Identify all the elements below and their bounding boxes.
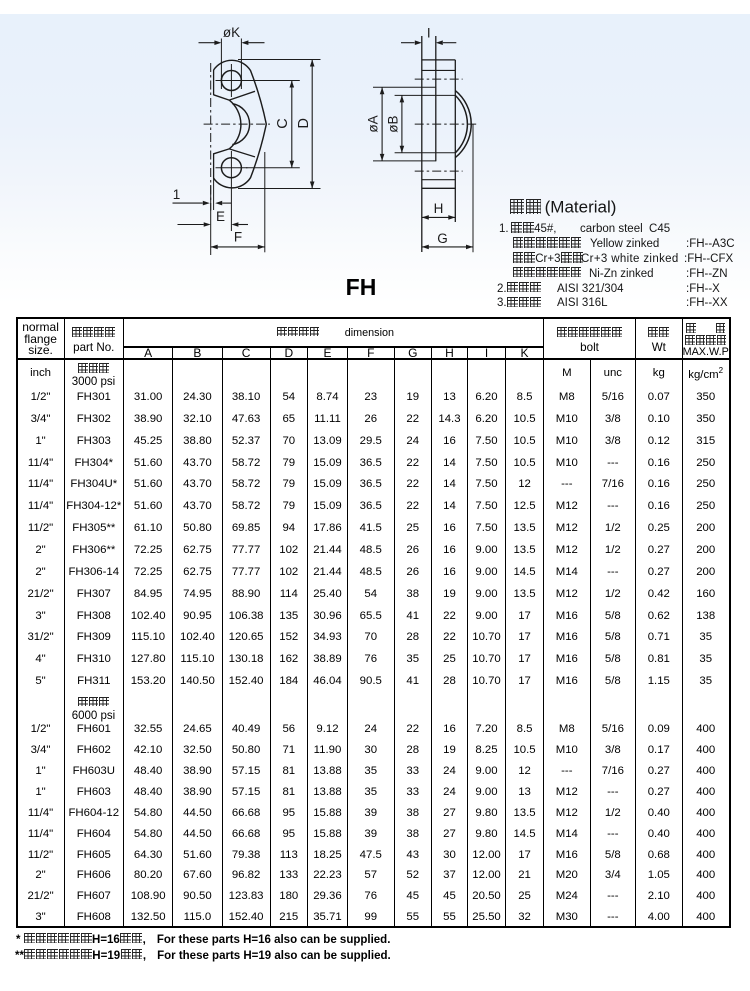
svg-text:1: 1 <box>173 187 181 202</box>
svg-text:H: H <box>434 201 444 216</box>
svg-text:øA: øA <box>366 115 381 132</box>
svg-text:øB: øB <box>385 115 400 132</box>
svg-text:C: C <box>275 118 291 128</box>
svg-text:D: D <box>296 118 312 128</box>
svg-text:øK: øK <box>223 25 240 40</box>
svg-text:I: I <box>427 26 431 41</box>
svg-text:E: E <box>216 209 225 224</box>
svg-text:F: F <box>234 230 242 245</box>
svg-text:G: G <box>437 231 448 246</box>
